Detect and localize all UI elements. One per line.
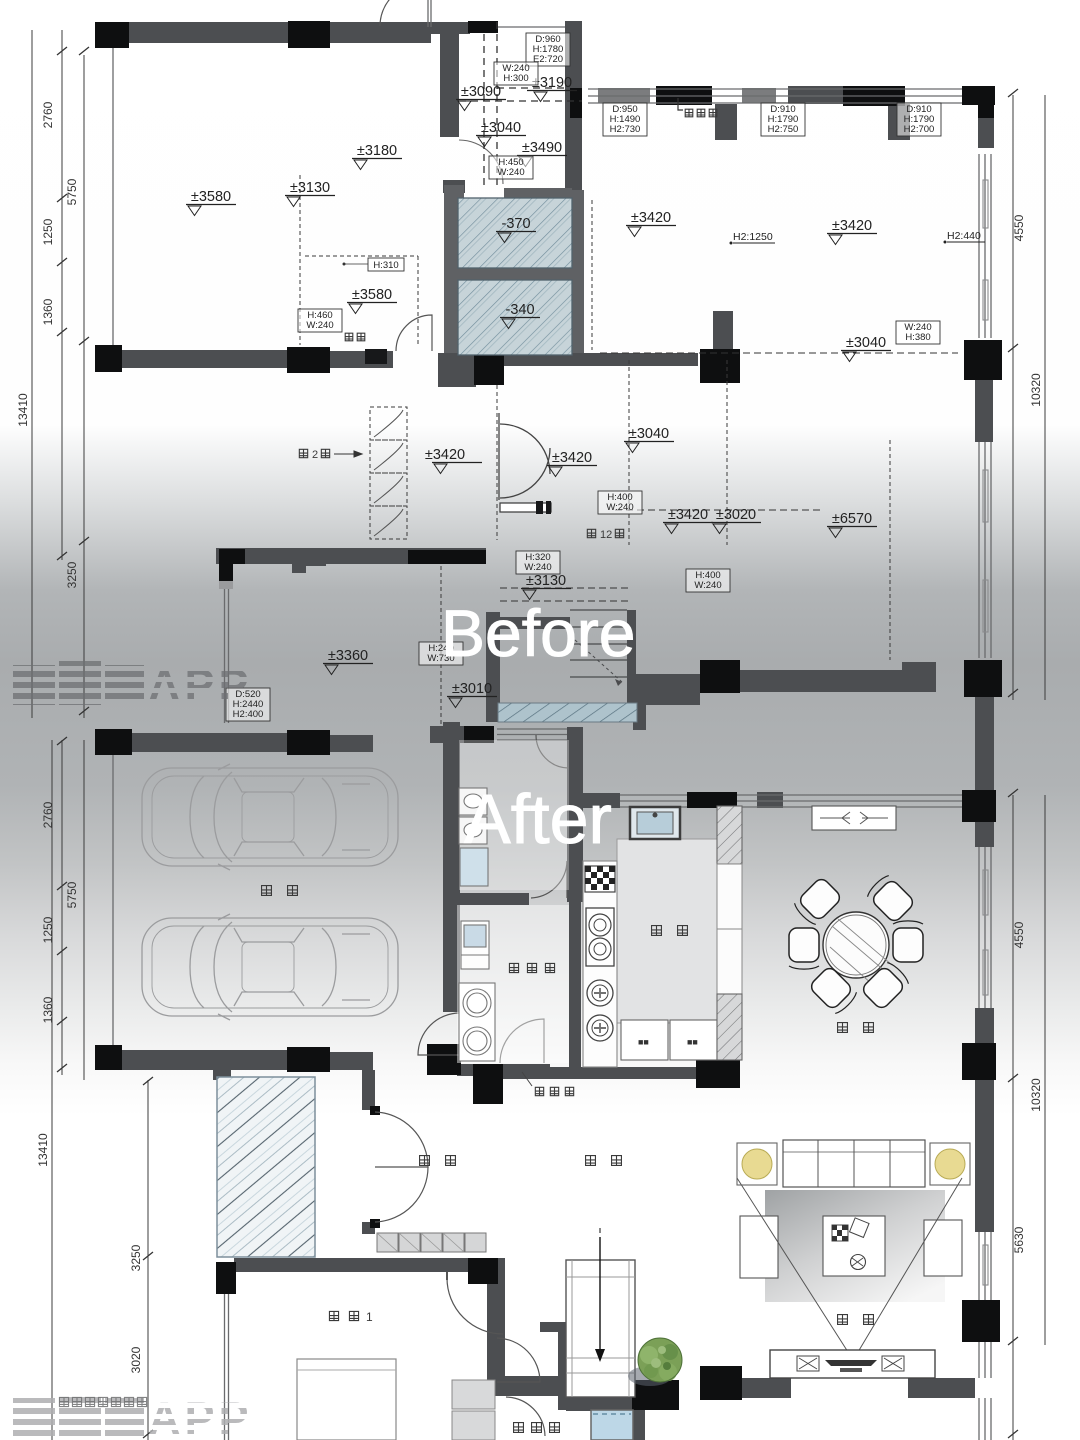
svg-text:W:240: W:240 xyxy=(606,502,633,513)
svg-text:H2:700: H2:700 xyxy=(904,124,935,135)
svg-text:Before: Before xyxy=(441,596,635,670)
svg-text:±6570: ±6570 xyxy=(832,511,872,527)
svg-text:±3360: ±3360 xyxy=(328,648,368,664)
svg-text:2760: 2760 xyxy=(41,801,55,828)
svg-text:H:380: H:380 xyxy=(905,332,930,343)
svg-text:2760: 2760 xyxy=(41,101,55,128)
svg-text:APP: APP xyxy=(148,1393,253,1440)
svg-text:2: 2 xyxy=(312,449,318,461)
svg-text:±3040: ±3040 xyxy=(846,335,886,351)
svg-text:±3020: ±3020 xyxy=(716,507,756,523)
svg-text:±3040: ±3040 xyxy=(481,120,521,136)
svg-text:3250: 3250 xyxy=(65,561,79,588)
svg-text:±3090: ±3090 xyxy=(461,84,501,100)
svg-text:H2:730: H2:730 xyxy=(610,124,641,135)
svg-text:After: After xyxy=(464,780,612,858)
svg-text:H2:750: H2:750 xyxy=(768,124,799,135)
svg-text:W:240: W:240 xyxy=(497,167,524,178)
svg-text:W:240: W:240 xyxy=(694,580,721,591)
svg-text:13410: 13410 xyxy=(36,1133,50,1167)
svg-text:3020: 3020 xyxy=(129,1346,143,1373)
svg-text:H2:440: H2:440 xyxy=(947,230,981,242)
svg-text:5750: 5750 xyxy=(65,178,79,205)
svg-text:-370: -370 xyxy=(501,216,530,232)
svg-text:H:310: H:310 xyxy=(373,260,398,271)
svg-text:±3420: ±3420 xyxy=(668,507,708,523)
svg-text:±3580: ±3580 xyxy=(352,287,392,303)
svg-text:■■: ■■ xyxy=(638,1037,649,1047)
svg-text:5630: 5630 xyxy=(1012,1226,1026,1253)
svg-text:H:300: H:300 xyxy=(503,73,528,84)
svg-text:-340: -340 xyxy=(505,302,534,318)
svg-text:13410: 13410 xyxy=(16,393,30,427)
svg-text:±3580: ±3580 xyxy=(191,189,231,205)
svg-text:W:240: W:240 xyxy=(306,320,333,331)
svg-text:±3010: ±3010 xyxy=(452,681,492,697)
svg-text:±3180: ±3180 xyxy=(357,143,397,159)
svg-text:3250: 3250 xyxy=(129,1244,143,1271)
svg-text:APP: APP xyxy=(148,660,253,711)
svg-text:H2:1250: H2:1250 xyxy=(733,231,773,243)
svg-text:±3130: ±3130 xyxy=(290,180,330,196)
svg-text:12: 12 xyxy=(600,529,612,541)
svg-text:±3130: ±3130 xyxy=(526,573,566,589)
svg-text:■■: ■■ xyxy=(687,1037,698,1047)
svg-text:±3040: ±3040 xyxy=(629,426,669,442)
svg-text:1360: 1360 xyxy=(41,298,55,325)
svg-text:1: 1 xyxy=(366,1310,373,1324)
svg-text:W:240: W:240 xyxy=(524,562,551,573)
svg-text:4550: 4550 xyxy=(1012,214,1026,241)
svg-text:±3420: ±3420 xyxy=(425,447,465,463)
svg-text:1250: 1250 xyxy=(41,218,55,245)
svg-text:1360: 1360 xyxy=(41,996,55,1023)
svg-text:10320: 10320 xyxy=(1029,373,1043,407)
svg-text:±3420: ±3420 xyxy=(552,450,592,466)
svg-text:±3490: ±3490 xyxy=(522,140,562,156)
svg-text:4550: 4550 xyxy=(1012,921,1026,948)
svg-text:±3420: ±3420 xyxy=(631,210,671,226)
svg-text:±3420: ±3420 xyxy=(832,218,872,234)
svg-text:1250: 1250 xyxy=(41,916,55,943)
svg-text:5750: 5750 xyxy=(65,881,79,908)
svg-text:10320: 10320 xyxy=(1029,1078,1043,1112)
